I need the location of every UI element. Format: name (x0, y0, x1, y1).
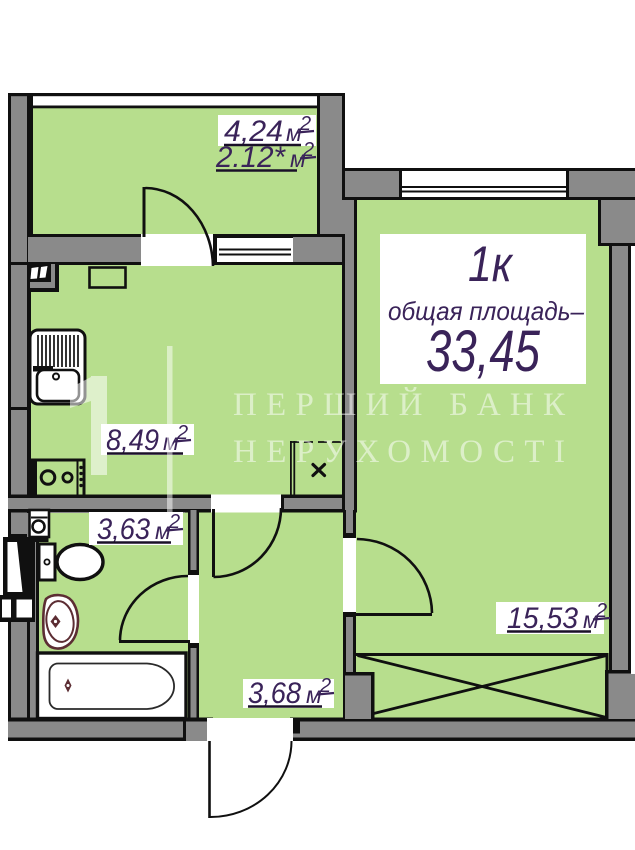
svg-text:2.12*: 2.12* (215, 141, 286, 174)
svg-text:1к: 1к (468, 236, 514, 292)
svg-text:33,45: 33,45 (426, 319, 541, 384)
svg-text:3,63: 3,63 (97, 513, 150, 546)
svg-text:15,53: 15,53 (507, 602, 578, 635)
svg-text:ПЕРШИЙ БАНК: ПЕРШИЙ БАНК (233, 386, 566, 423)
svg-text:3,68: 3,68 (248, 677, 301, 710)
svg-text:8,49: 8,49 (106, 424, 159, 457)
